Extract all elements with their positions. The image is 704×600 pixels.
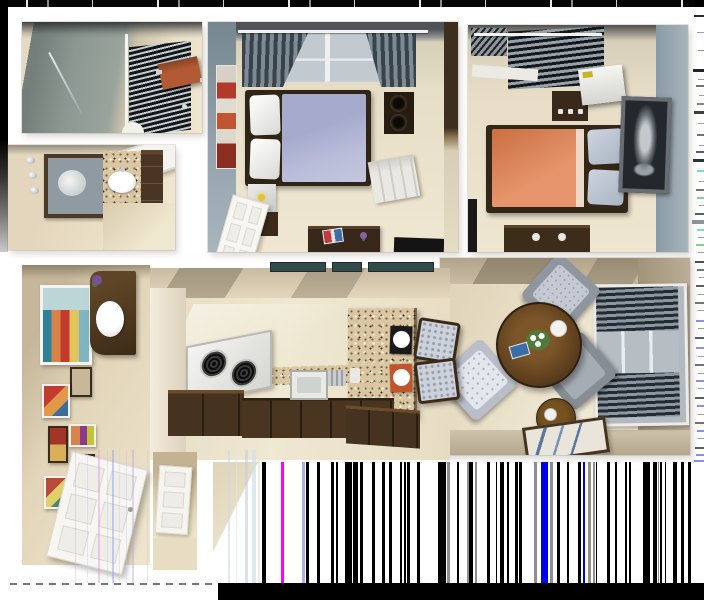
dish-rack [328, 370, 346, 386]
pillow [249, 94, 280, 135]
glitch-dash [698, 50, 704, 51]
wall-sconce [26, 157, 35, 164]
barcode-bar [487, 462, 490, 583]
barcode-bar [688, 462, 691, 583]
lavender-duvet [282, 94, 366, 182]
wall-sconce [30, 187, 39, 194]
glitch-dash [699, 205, 704, 206]
transom-window [332, 262, 362, 272]
wall-art [217, 66, 236, 168]
glitch-dash [696, 189, 704, 191]
glitch-left-band [0, 0, 8, 252]
ceiling-shadow [22, 22, 202, 38]
glitch-dash [695, 397, 704, 399]
glitch-dash [693, 159, 704, 162]
glitch-dash [698, 237, 704, 238]
glitch-dash [699, 181, 704, 182]
glitch-stripe [252, 450, 256, 583]
plate [393, 331, 410, 348]
barcode-bar [578, 462, 581, 583]
folded-sheet [576, 129, 584, 207]
barcode-bar [534, 462, 537, 583]
barcode-bar [596, 462, 597, 583]
glitch-dash [698, 373, 704, 374]
glitch-stripe [87, 450, 88, 583]
bathroom-floor [103, 203, 175, 250]
ac-unit [578, 64, 626, 105]
glitch-stripe [245, 450, 248, 583]
barcode-bar [302, 462, 305, 583]
barcode-bar [353, 462, 358, 583]
barcode-bar [469, 462, 473, 583]
desk [504, 225, 590, 252]
barcode-bar [306, 462, 309, 583]
closet-divider-pole [125, 34, 128, 133]
glitch-dash [697, 170, 704, 172]
flower-centerpiece [526, 330, 550, 350]
bar-stool [414, 358, 461, 405]
glitch-dash [692, 220, 704, 224]
glitch-stripe [236, 450, 237, 583]
curtain-rod [238, 30, 428, 33]
barcode-bar [660, 462, 662, 583]
glitch-dash [696, 347, 704, 349]
glitch-dash [697, 32, 704, 33]
stove-cabinet [168, 390, 244, 436]
wall-art-frame [40, 285, 92, 365]
barcode-bar [593, 462, 595, 583]
barcode-bar [541, 462, 548, 583]
wall-art-frame [69, 424, 96, 447]
burner [230, 356, 258, 389]
glitch-dash [696, 85, 704, 87]
glitch-dash [695, 213, 704, 215]
barcode-bar [417, 462, 420, 583]
glitch-dash [697, 134, 704, 136]
glitch-dash [696, 454, 704, 456]
barcode-bar [360, 462, 363, 583]
dresser [308, 226, 380, 252]
orange-duvet [492, 129, 580, 207]
floor-art [522, 416, 610, 455]
barcode-bar [607, 462, 610, 583]
room-bathroom [8, 145, 175, 250]
barcode-bar [389, 462, 392, 583]
glitch-dash [695, 337, 704, 339]
window-with-blinds [593, 283, 689, 427]
barcode-bar [345, 462, 352, 583]
speaker-cabinet [384, 92, 414, 134]
bathroom-sink [108, 171, 136, 193]
closet-doors [368, 154, 421, 203]
glitch-dash [695, 364, 704, 366]
glitch-top-band [0, 0, 704, 7]
glitch-dash [697, 197, 704, 199]
glitch-dash [698, 294, 704, 295]
glitch-dash [696, 320, 704, 322]
barcode-bar [658, 462, 659, 583]
glitch-dashed-line [10, 583, 216, 585]
entry-floor [153, 538, 197, 570]
barcode-bar [673, 462, 677, 583]
wall-art-frame [48, 426, 68, 463]
transom-window [368, 262, 434, 272]
glitch-dash [698, 414, 704, 415]
barcode-bar [681, 462, 684, 583]
glitch-stripe [75, 450, 76, 583]
glitch-dash [698, 356, 704, 357]
barcode-bar [567, 462, 569, 583]
pillow [249, 138, 280, 179]
round-mirror [96, 301, 124, 337]
mirror-reflection [58, 170, 86, 196]
barcode-bar [496, 462, 497, 583]
glitch-dash [698, 123, 704, 124]
wall-art-frame [70, 367, 92, 397]
glitch-bottom-band [218, 583, 704, 600]
glitch-dash [697, 430, 704, 432]
room-bedroom-orange [468, 25, 688, 252]
cup [544, 408, 557, 421]
shelf-bracket [156, 70, 162, 74]
barcode-bar [615, 462, 617, 583]
glitch-dash [698, 328, 704, 329]
burner [200, 347, 228, 380]
plate [393, 369, 410, 386]
glitch-dash [696, 285, 704, 287]
barcode-bar [281, 462, 284, 583]
transom-window [270, 262, 326, 272]
glitch-dash [697, 229, 704, 231]
glitch-dash [693, 69, 704, 72]
glitch-dash [695, 302, 704, 304]
room-bedroom-lavender [208, 22, 458, 252]
barcode-bar [407, 462, 410, 583]
glitch-stripe [132, 450, 134, 583]
glitch-dash [698, 388, 704, 389]
barcode-bar [665, 462, 666, 583]
barcode-bar [550, 462, 553, 583]
barcode-bar [557, 462, 560, 583]
barcode-bar [457, 462, 459, 583]
room-living [440, 258, 690, 455]
barcode-bar [629, 462, 631, 583]
barcode-band [256, 462, 704, 583]
glitch-dash [695, 447, 704, 449]
glitch-dash [699, 277, 704, 278]
glitch-dash [694, 111, 704, 114]
curtain-rod [474, 33, 602, 36]
room-kitchen [150, 268, 450, 460]
barcode-bar [500, 462, 504, 583]
wardrobe-strip [444, 22, 458, 252]
jar [350, 368, 360, 383]
glitch-dash [694, 15, 704, 17]
right-glitch-strip [690, 7, 704, 462]
skeleton-art-frame [618, 96, 671, 194]
barcode-bar [317, 462, 320, 583]
barcode-bar [400, 462, 402, 583]
wall-art-frame [42, 384, 70, 418]
magazines [323, 229, 342, 243]
glitch-dash [695, 261, 704, 263]
flower-vase [92, 275, 102, 285]
vanity-mirror [44, 154, 108, 218]
glitch-dash [697, 405, 704, 407]
glitch-dash [698, 438, 704, 439]
barcode-bar [372, 462, 375, 583]
plate [550, 320, 567, 337]
barcode-bar [519, 462, 522, 583]
shelf-bracket [200, 78, 202, 82]
slatted-blinds [129, 41, 191, 133]
glitch-dash [698, 79, 704, 80]
glitch-dash [697, 103, 704, 105]
island-cabinet [346, 405, 420, 448]
glitch-stripe [119, 450, 120, 583]
closet-door [155, 465, 193, 535]
glitch-stripe [147, 450, 148, 583]
glitch-dash [698, 252, 704, 253]
barcode-bar [336, 462, 338, 583]
barcode-bar [262, 462, 266, 583]
barcode-bar [625, 462, 627, 583]
chrome-knob [182, 104, 187, 109]
glitch-dash [698, 310, 704, 311]
faucet [120, 167, 125, 172]
barcode-bar [382, 462, 385, 583]
glitch-dash [697, 269, 704, 271]
wall-sconce [28, 172, 37, 179]
barcode-bar [507, 462, 509, 583]
closet-rod [48, 52, 83, 115]
barcode-bar [653, 462, 657, 583]
barcode-bar [404, 462, 406, 583]
glitch-stripe [112, 450, 114, 583]
glitch-stripe [98, 450, 100, 583]
glitch-stripe [258, 450, 260, 583]
barcode-bar [331, 462, 334, 583]
barcode-bar [643, 462, 650, 583]
glitch-dash [696, 244, 704, 246]
door-gap [468, 199, 477, 252]
flower-vase [360, 232, 367, 239]
blind-slats [596, 286, 679, 331]
barcode-bar [515, 462, 518, 583]
glitch-stripe [228, 450, 230, 583]
kitchen-sink [290, 370, 328, 400]
glitch-dash [699, 95, 704, 96]
glitch-dash [696, 151, 704, 153]
lamp [258, 194, 265, 201]
glitch-dash [695, 422, 704, 424]
floorplan-render [0, 0, 704, 600]
glitch-stripe [107, 450, 108, 583]
barcode-bar [588, 462, 591, 583]
tv [394, 237, 445, 252]
barcode-bar [438, 462, 446, 583]
room-walkin-closet [22, 22, 202, 133]
barcode-bar [583, 462, 585, 583]
glitch-dash [699, 145, 704, 146]
barcode-bar [475, 462, 477, 583]
glitch-dash [696, 380, 704, 382]
barcode-bar [447, 462, 450, 583]
glitch-stripe [126, 450, 127, 583]
